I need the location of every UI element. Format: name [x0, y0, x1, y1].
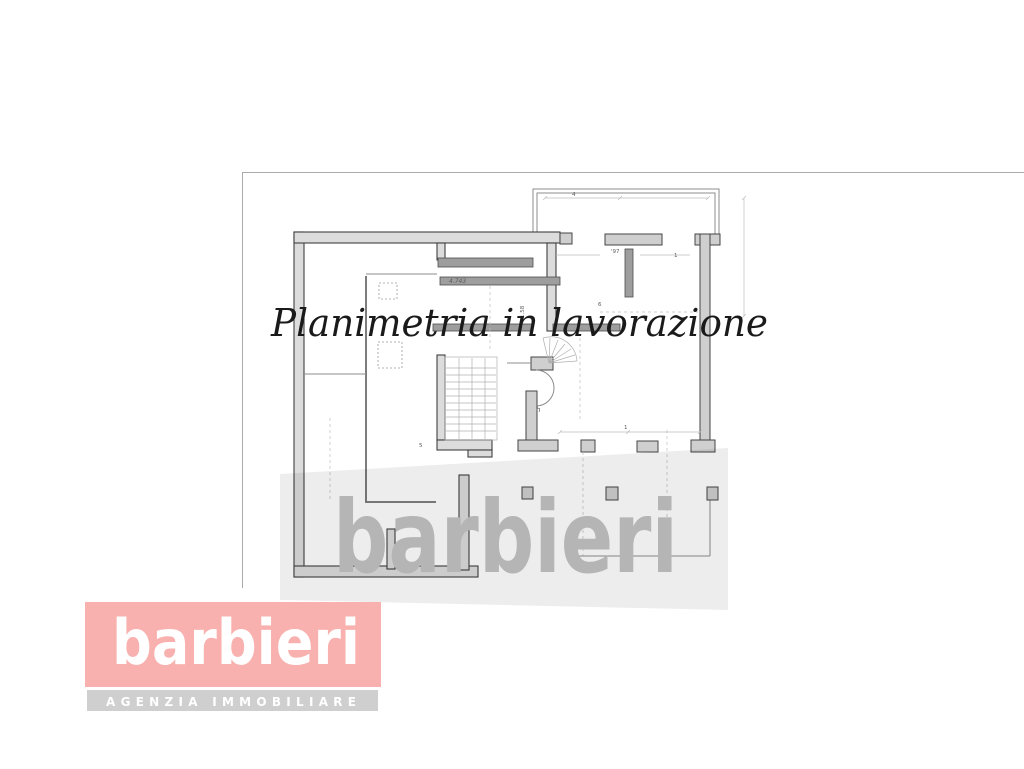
stairs: [437, 337, 577, 457]
dim-label: 1: [674, 253, 678, 259]
agency-logo: barbieri AGENZIA IMMOBILIARE: [85, 602, 381, 711]
stair-treads: [446, 358, 496, 439]
room-label: h: [536, 406, 540, 414]
dim-label: 4.743: [449, 278, 466, 285]
stair-newel: [531, 357, 553, 370]
listing-image: 4.743 1.58 6 '97 1 h 5 1 4 barbieri Plan…: [0, 0, 1024, 769]
door-arc: [536, 370, 554, 406]
watermark-text: barbieri: [333, 479, 678, 596]
dim-label: 4: [572, 192, 576, 198]
logo-tagline-text: AGENZIA IMMOBILIARE: [106, 695, 356, 709]
room-label: 5: [419, 443, 423, 449]
floor-plan-svg: 4.743 1.58 6 '97 1 h 5 1 4 barbieri Plan…: [0, 0, 1024, 769]
status-overlay-text: Planimetria in lavorazione: [270, 301, 768, 345]
dim-label: '97: [611, 249, 620, 255]
logo-brand-text: barbieri: [112, 606, 360, 679]
dim-label: 1: [624, 425, 628, 431]
